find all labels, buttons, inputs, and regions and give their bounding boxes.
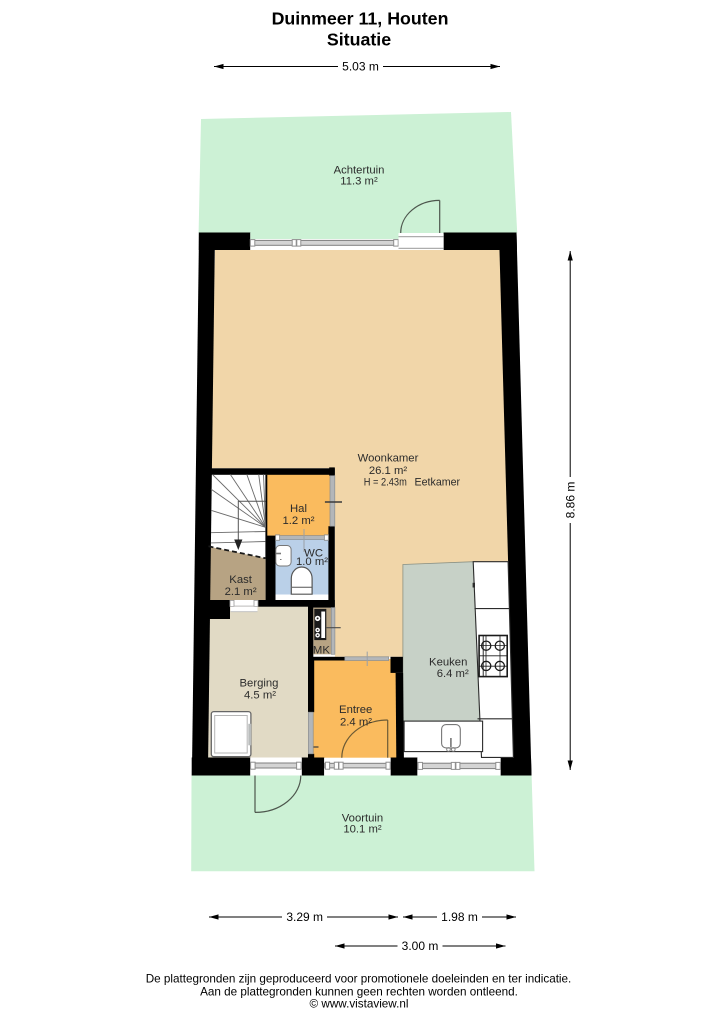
svg-text:Keuken: Keuken [429,657,467,669]
svg-text:1.2 m²: 1.2 m² [282,515,314,527]
svg-text:1.98 m: 1.98 m [441,910,478,924]
svg-text:10.1 m²: 10.1 m² [343,824,382,836]
svg-text:11.3 m²: 11.3 m² [340,176,378,188]
svg-text:2.4 m²: 2.4 m² [340,717,372,729]
svg-text:© www.vistaview.nl: © www.vistaview.nl [310,998,409,1011]
svg-text:2.1 m²: 2.1 m² [225,586,257,598]
svg-text:6.4 m²: 6.4 m² [437,668,469,680]
svg-text:Situatie: Situatie [327,30,391,50]
svg-text:3.29 m: 3.29 m [286,910,323,924]
svg-text:Berging: Berging [240,678,279,690]
svg-text:Kast: Kast [229,574,252,586]
svg-text:Hal: Hal [290,503,307,515]
svg-text:De plattegronden zijn geproduc: De plattegronden zijn geproduceerd voor … [146,973,572,986]
svg-text:Eetkamer: Eetkamer [415,477,461,489]
svg-text:5.03 m: 5.03 m [342,60,379,74]
svg-text:4.5 m²: 4.5 m² [244,690,276,702]
svg-text:8.86 m: 8.86 m [564,482,578,519]
svg-text:26.1 m²: 26.1 m² [369,465,408,477]
svg-text:3.00 m: 3.00 m [402,939,439,953]
svg-text:Entree: Entree [339,704,372,716]
svg-text:Aan de plattegronden kunnen ge: Aan de plattegronden kunnen geen rechten… [200,985,518,998]
svg-text:H = 2.43m: H = 2.43m [364,476,407,488]
svg-text:MK: MK [313,645,330,657]
svg-text:1.0 m²: 1.0 m² [296,556,328,568]
svg-text:Duinmeer 11, Houten: Duinmeer 11, Houten [272,9,449,29]
svg-text:Woonkamer: Woonkamer [358,452,419,464]
